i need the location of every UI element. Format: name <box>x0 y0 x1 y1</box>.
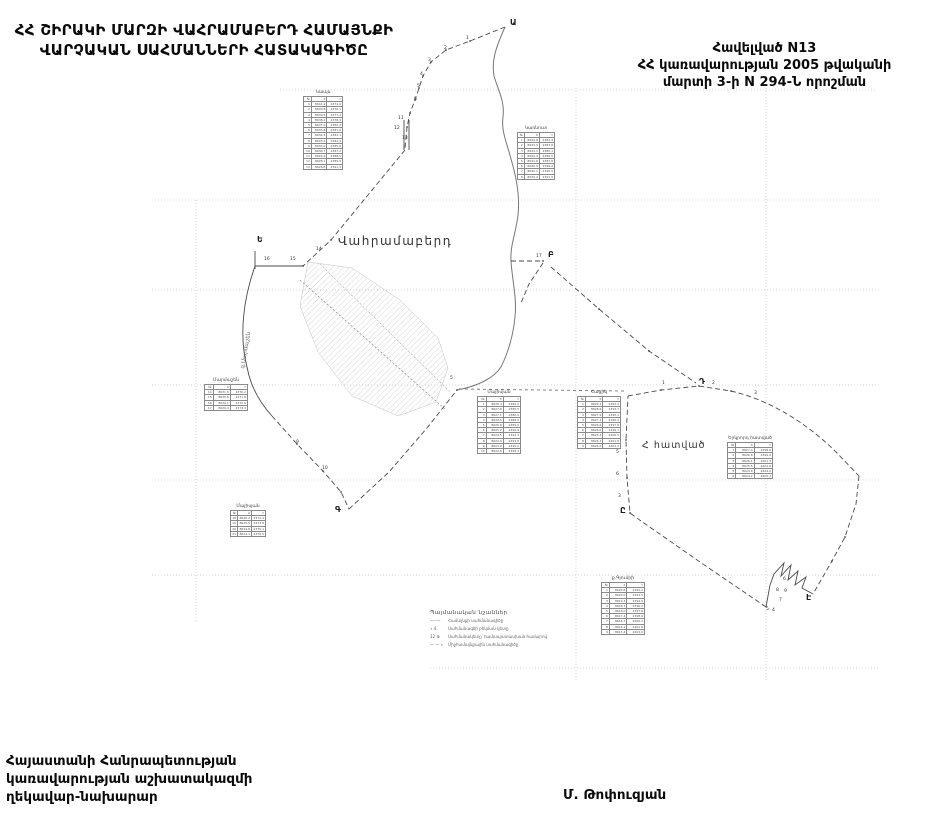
map-title: ՀՀ ՇԻՐԱԿԻ ՄԱՐԶԻ ՎԱՀՐԱՄԱԲԵՐԴ ՀԱՄԱՅՆՔԻ ՎԱՐ… <box>4 20 404 60</box>
coordinate-cell: 2376.5 <box>252 531 266 536</box>
coordinate-table-row: 208624.82375.1 <box>231 526 266 531</box>
signature-name: Մ. Թոփուզյան <box>563 787 666 803</box>
coordinate-table-title: Հացիկ <box>577 390 621 395</box>
coordinate-cell: 17 <box>205 405 214 410</box>
coordinate-table-row: 138626.82391.3 <box>304 164 343 169</box>
coordinate-table-row: 68625.22390.9 <box>478 428 521 433</box>
coordinate-cell: 8626.8 <box>311 164 327 169</box>
coordinate-table-title: Կառնուտ <box>517 126 555 131</box>
coordinate-cell: 8640.1 <box>524 169 539 174</box>
coordinate-table-row: 178629.42374.3 <box>205 405 248 410</box>
appendix-reference: Հավելված N13 ՀՀ կառավարության 2005 թվակա… <box>592 40 937 91</box>
coordinate-cell: 2375.1 <box>252 526 266 531</box>
coordinate-table-row: 98632.02385.8 <box>304 143 343 148</box>
coordinate-table: ք.Գյումրի№XY18620.62392.228620.02393.538… <box>601 576 645 635</box>
coordinate-table: Մարմաշեն№XY148631.52370.2158630.82371.61… <box>204 378 248 411</box>
boundary-point-number: 1 <box>662 381 665 386</box>
legend-symbol-icon: —··— <box>430 618 448 623</box>
coordinate-cell: 8644.6 <box>524 138 539 143</box>
coordinate-table-row: 48618.72396.2 <box>602 603 645 608</box>
boundary-point-number: 5 <box>616 450 619 455</box>
river-line <box>457 27 519 390</box>
coordinate-table-row: 88623.92393.6 <box>478 438 521 443</box>
coordinate-cell: 9 <box>602 629 610 634</box>
boundary-point-number: 13 <box>402 136 408 141</box>
legend-symbol-icon: — — ∙ <box>430 642 448 647</box>
boundary-point-number: 6 <box>414 97 417 102</box>
legend-item: 12 ⊕Սահմանակետը՝ համապատասխան համարով <box>430 634 548 639</box>
boundary-point-number: 16 <box>264 257 270 262</box>
coordinate-cell: 8641.6 <box>524 159 539 164</box>
coordinate-table-row: 78624.52392.3 <box>478 433 521 438</box>
coordinate-table-row: 168630.12372.9 <box>205 400 248 405</box>
coordinate-cell: 2403.0 <box>627 629 645 634</box>
legend-item-label: Սահմանագծի բեկման կետը <box>448 626 509 631</box>
boundary-point-number: 10 <box>322 466 328 471</box>
coordinate-cell: 2396.3 <box>503 449 520 454</box>
coordinate-table-row: 48638.22378.9 <box>304 117 343 122</box>
coordinate-table-row: 28626.82399.9 <box>728 453 773 458</box>
coordinate-cell: 2391.3 <box>327 164 343 169</box>
boundary-point-number: 5 <box>450 376 453 381</box>
section-letter: Դ <box>699 377 705 386</box>
coordinate-cell: 8624.0 <box>585 443 603 448</box>
coordinate-table-row: 18641.22374.6 <box>304 102 343 107</box>
coordinate-cell: 9 <box>578 443 586 448</box>
boundary-point-number: 2 <box>444 46 447 51</box>
section-letter: Բ <box>548 250 554 259</box>
signatory-line1: Հայաստանի Հանրապետության <box>6 752 252 770</box>
boundary-point-number: 6 <box>783 577 786 582</box>
map-title-line1: ՀՀ ՇԻՐԱԿԻ ՄԱՐԶԻ ՎԱՀՐԱՄԱԲԵՐԴ ՀԱՄԱՅՆՔԻ <box>4 20 404 40</box>
coordinate-table-row: 38639.52377.4 <box>304 112 343 117</box>
legend-item: ∙ 4Սահմանագծի բեկման կետը <box>430 626 548 631</box>
boundary-point-number: 1 <box>466 36 469 41</box>
boundary-point-number: 2 <box>712 381 715 386</box>
coordinate-table-row: 98615.42403.0 <box>602 629 645 634</box>
legend-symbol-icon: ∙ 4 <box>430 626 448 631</box>
coordinate-table-row: 98624.02403.2 <box>578 443 621 448</box>
boundary-point-number: 9 <box>296 440 299 445</box>
coordinate-table-title: Մայիսյան <box>230 504 266 509</box>
coordinate-cell: 6 <box>728 474 736 479</box>
signatory-line2: կառավարության աշխատակազմի <box>6 770 252 788</box>
legend-item-label: Սահմանակետը՝ համապատասխան համարով <box>448 634 547 639</box>
boundary-point-number: 17 <box>536 254 542 259</box>
coordinate-table-row: 218624.12376.5 <box>231 531 266 536</box>
coordinate-table-row: 28627.82385.5 <box>478 407 521 412</box>
appendix-line2: ՀՀ կառավարության 2005 թվականի <box>592 57 937 74</box>
coordinate-table-row: 18627.42398.6 <box>728 448 773 453</box>
coordinate-table-title: Մարմաշեն <box>204 378 248 383</box>
coordinate-table: Մայիսյան№XY18628.42384.228627.82385.5386… <box>477 390 521 454</box>
coordinate-table-row: 98623.22395.0 <box>478 443 521 448</box>
coordinate-table-row: 68624.22405.3 <box>728 474 773 479</box>
coordinate-table-row: 88639.42391.9 <box>518 174 555 179</box>
coordinate-table: Մայիսյան№XY188626.22372.4198625.52373.82… <box>230 504 266 537</box>
boundary-point-number: 7 <box>779 598 782 603</box>
coordinate-table-row: 88633.22384.4 <box>304 138 343 143</box>
coordinate-table: Կառնուտ№XY18644.62382.428643.92383.83864… <box>517 126 555 180</box>
boundary-point-number: 9 <box>784 589 787 594</box>
coordinate-cell: 10 <box>478 449 487 454</box>
coordinate-table-row: 58626.62397.8 <box>578 423 621 428</box>
coordinate-table-row: 158630.82371.6 <box>205 395 248 400</box>
coordinate-table-row: 58637.02380.2 <box>304 123 343 128</box>
coordinate-cell: 8622.6 <box>486 449 503 454</box>
coordinate-cell: 2391.9 <box>539 174 554 179</box>
coordinate-table-row: 108630.72387.2 <box>304 149 343 154</box>
coordinate-cell: 8642.4 <box>524 153 539 158</box>
boundary-point-number: 5 <box>417 84 420 89</box>
settlement-label: Վահրամաբերդ <box>338 234 452 248</box>
coordinate-table-row: 58618.02397.6 <box>602 609 645 614</box>
coordinate-table-row: 58624.82404.0 <box>728 469 773 474</box>
legend: Պայմանական նշաններ—··—Համայնքի սահմանագի… <box>430 610 548 650</box>
legend-symbol-icon: 12 ⊕ <box>430 634 448 639</box>
coordinate-table-row: 28640.82376.1 <box>304 107 343 112</box>
coordinate-table-row: 48625.52402.6 <box>728 463 773 468</box>
map-drawing <box>0 0 941 819</box>
boundary-point-number: 4 <box>772 608 775 613</box>
appendix-line1: Հավելված N13 <box>592 40 937 57</box>
coordinate-table-title: Կապս <box>303 90 343 95</box>
boundary-point-number: 3 <box>754 391 757 396</box>
appendix-line3: մարտի 3-ի N 294-Ն որոշման <box>592 74 937 91</box>
legend-item-label: Համայնքի սահմանագիծը <box>448 618 503 623</box>
coordinate-cell: 2372.4 <box>252 516 266 521</box>
coordinate-table-row: 48627.32396.4 <box>578 417 621 422</box>
boundary-point-number: 4 <box>420 72 423 77</box>
coordinate-cell: 8624.8 <box>238 526 252 531</box>
coordinate-table-row: 38619.32394.9 <box>602 598 645 603</box>
boundary-point-number: 12 <box>394 126 400 131</box>
coordinate-table-row: 78634.52383.1 <box>304 133 343 138</box>
coordinate-cell: 8643.9 <box>524 143 539 148</box>
coordinate-cell: 8629.4 <box>213 405 230 410</box>
coordinate-table-row: 198625.52373.8 <box>231 521 266 526</box>
coordinate-table-title: ք.Գյումրի <box>601 576 645 581</box>
boundary-point-number: 8 <box>776 588 779 593</box>
coordinate-table-row: 128628.12389.9 <box>304 159 343 164</box>
coordinate-cell: 8625.5 <box>238 521 252 526</box>
section-letter: Գ <box>335 505 341 514</box>
coordinate-table: Կապս№XY18641.22374.628640.82376.138639.5… <box>303 90 343 170</box>
legend-title: Պայմանական նշաններ <box>430 610 548 616</box>
signatory-title: Հայաստանի Հանրապետության կառավարության ա… <box>6 752 252 806</box>
boundary-point-number: 6 <box>616 472 619 477</box>
coordinate-cell: 8626.2 <box>238 516 252 521</box>
coordinate-table-row: 38627.12386.9 <box>478 412 521 417</box>
coordinate-cell: 2403.2 <box>603 443 621 448</box>
coordinate-table-row: 88624.72401.8 <box>578 438 621 443</box>
scanned-map-document: ՀՀ ՇԻՐԱԿԻ ՄԱՐԶԻ ՎԱՀՐԱՄԱԲԵՐԴ ՀԱՄԱՅՆՔԻ ՎԱՐ… <box>0 0 941 819</box>
coordinate-table-row: 88616.12401.6 <box>602 624 645 629</box>
coordinate-table-row: 18628.42384.2 <box>478 402 521 407</box>
boundary-point-number: 3 <box>428 58 431 63</box>
boundary-point-number: 5 <box>766 607 769 612</box>
boundary-point-number: 15 <box>290 257 296 262</box>
coordinate-table-row: 148631.52370.2 <box>205 390 248 395</box>
section-letter: Է <box>806 593 811 602</box>
coordinate-cell: 2374.3 <box>230 405 247 410</box>
coordinate-table-row: 68635.82381.6 <box>304 128 343 133</box>
coordinate-cell: 8624.1 <box>238 531 252 536</box>
section-letter: Ե <box>257 235 263 244</box>
coordinate-cell: 8 <box>518 174 525 179</box>
coordinate-table: Հացիկ№XY18629.22392.428628.62393.738627.… <box>577 390 621 449</box>
coordinate-table-row: 38626.12401.3 <box>728 458 773 463</box>
coordinate-table-row: 118629.42388.5 <box>304 154 343 159</box>
section-letter: Ա <box>510 18 517 27</box>
coordinate-cell: 8643.1 <box>524 148 539 153</box>
coordinate-table-row: 188626.22372.4 <box>231 516 266 521</box>
coordinate-table-row: 38627.92395.1 <box>578 412 621 417</box>
section2-label: Հ հատված <box>642 440 706 451</box>
boundary-point-number: 11 <box>398 116 404 121</box>
coordinate-cell: 13 <box>304 164 312 169</box>
boundary-point-number: 14 <box>316 247 322 252</box>
coordinate-table-row: 58625.82389.6 <box>478 423 521 428</box>
boundary-point-number: 3 <box>618 494 621 499</box>
coordinate-cell: 8640.9 <box>524 164 539 169</box>
legend-item: —··—Համայնքի սահմանագիծը <box>430 618 548 623</box>
coordinate-cell: 8615.4 <box>609 629 627 634</box>
coordinate-cell: 2373.8 <box>252 521 266 526</box>
coordinate-cell: 2405.3 <box>754 474 772 479</box>
coordinate-cell: 8624.2 <box>736 474 754 479</box>
legend-item: — — ∙Միջհամայնքային սահմանագիծը <box>430 642 548 647</box>
settlement-area <box>300 262 450 416</box>
coordinate-cell: 21 <box>231 531 238 536</box>
coordinate-table-row: 108622.62396.3 <box>478 449 521 454</box>
coordinate-table-title: Երկրորդ հատված <box>727 436 773 441</box>
section-letter: Ը <box>620 506 626 515</box>
map-title-line2: ՎԱՐՉԱԿԱՆ ՍԱՀՄԱՆՆԵՐԻ ՀԱՏԱԿԱԳԻԾԸ <box>4 40 404 60</box>
coordinate-table: Երկրորդ հատված№XY18627.42398.628626.8239… <box>727 436 773 479</box>
coordinate-cell: 8639.4 <box>524 174 539 179</box>
coordinate-table-row: 48626.52388.2 <box>478 417 521 422</box>
signatory-line3: ղեկավար-նախարար <box>6 788 252 806</box>
coordinate-table-title: Մայիսյան <box>477 390 521 395</box>
legend-item-label: Միջհամայնքային սահմանագիծը <box>448 642 518 647</box>
section2-boundary <box>626 386 859 607</box>
